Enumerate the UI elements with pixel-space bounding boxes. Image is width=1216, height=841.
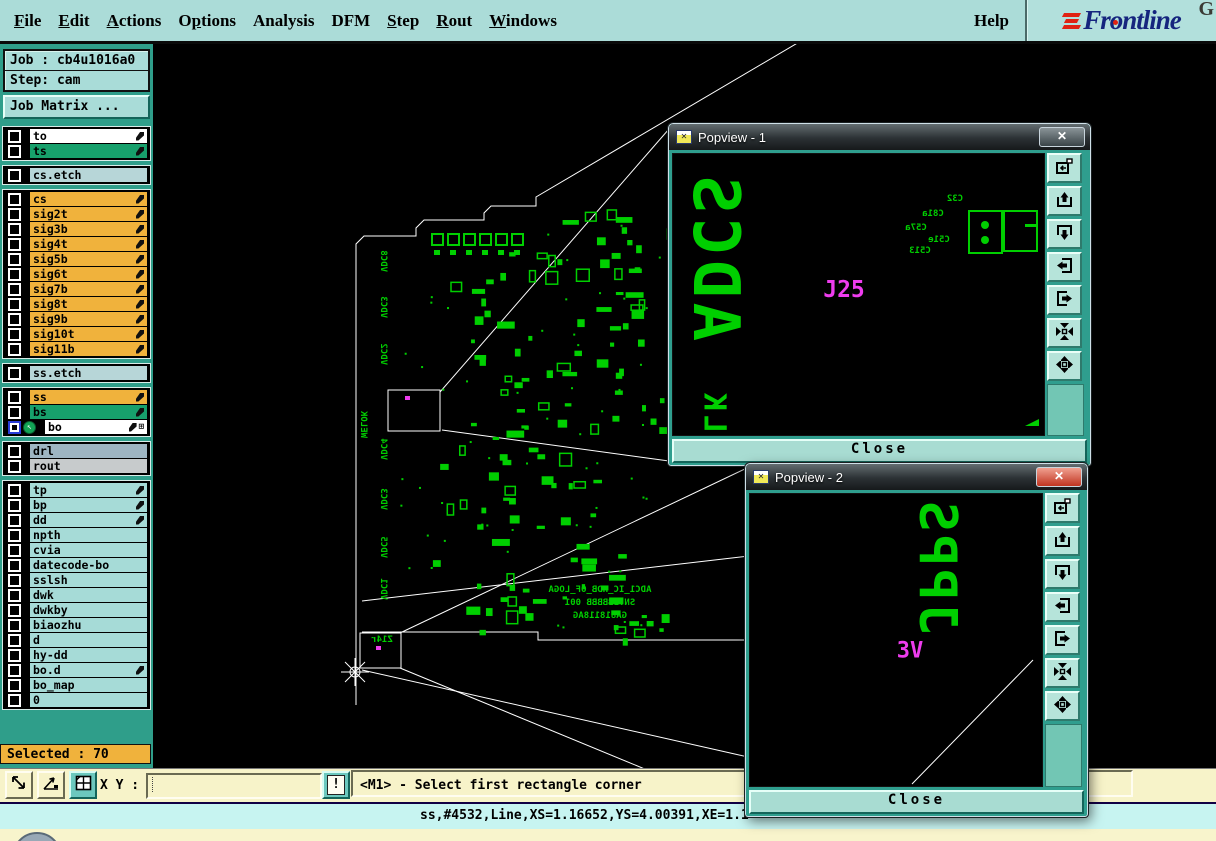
layer-visibility-checkbox[interactable] [8,484,21,497]
layer-visibility-checkbox[interactable] [8,499,21,512]
popview-1-drawing: ADCS J25 LK C32C81aC57aC51eC513 [673,154,1044,435]
pan-left-button[interactable] [1047,252,1082,282]
logo-speed-lines-icon [1063,13,1080,29]
layer-row-dwk[interactable]: dwk [5,588,148,602]
layer-label: tp [33,483,47,497]
layer-list: totscs.etchcssig2tsig3bsig4tsig5bsig6tsi… [2,126,151,710]
layer-chip[interactable]: sig4t [29,236,148,252]
popview-app-icon: ✕ [753,470,769,484]
component-ref-label: C513 [909,246,931,256]
layer-chip[interactable]: sig8t [29,296,148,312]
layer-label: ss [33,390,47,404]
pan-down-button[interactable] [1047,219,1082,249]
layer-row-ss.etch[interactable]: ss.etch [5,366,148,380]
zoom-out-icon [1053,662,1072,684]
layer-visibility-checkbox[interactable] [8,574,21,587]
layer-row-sig8t[interactable]: sig8t [5,297,148,311]
layer-label: cvia [33,543,61,557]
pan-left-button[interactable] [1045,592,1080,622]
layer-chip[interactable]: sig11b [29,341,148,357]
highlight-marker [376,646,381,650]
angle-snap-button[interactable] [37,771,65,799]
layer-row-cvia[interactable]: cvia [5,543,148,557]
layer-row-ss[interactable]: ss [5,390,148,404]
layer-row-biaozhu[interactable]: biaozhu [5,618,148,632]
feather-edit-icon[interactable] [136,225,144,234]
layer-visibility-checkbox[interactable] [8,193,21,206]
layer-label: bo.d [33,663,61,677]
highlight-marker [405,396,410,400]
layer-label: hy-dd [33,648,68,662]
layer-label: to [33,129,47,143]
menu-item-file[interactable]: File [14,11,41,31]
layer-group: drlrout [2,441,151,476]
layer-chip[interactable]: cs.etch [29,167,148,183]
layer-row-cs.etch[interactable]: cs.etch [5,168,148,182]
selected-count-badge: Selected : 70 [0,744,151,764]
feather-edit-icon[interactable] [136,516,144,525]
feather-edit-icon[interactable] [136,408,144,417]
layer-label: dd [33,513,47,527]
layer-label: sslsh [33,573,68,587]
component-ref-label: C32 [947,194,963,204]
xy-label: X Y : [100,769,139,802]
layer-chip[interactable]: dwk [29,587,148,603]
layer-chip[interactable]: sig5b [29,251,148,267]
layer-visibility-checkbox[interactable] [8,391,21,404]
feather-edit-icon[interactable] [136,666,144,675]
layer-chip[interactable]: ss.etch [29,365,148,381]
popview-1-title: Popview - 1 [698,130,1039,145]
layer-chip[interactable]: ts [29,143,148,159]
sidebar: Job : cb4u1016a0 Step: cam Job Matrix ..… [0,44,155,768]
taskbar-edge [0,829,1216,841]
zoom-leader-line [362,670,748,757]
pan-up-icon [1055,190,1074,212]
pan-right-icon [1055,289,1074,311]
board-title-text: ADC1_IC_HDB_OF_LOGA [548,585,652,595]
tile-grid-icon [74,774,93,796]
component-ref-label: C51e [928,235,950,245]
menu-item-actions[interactable]: Actions [107,11,162,31]
layer-visibility-checkbox[interactable] [8,367,21,380]
layer-label: dwkby [33,603,68,617]
layer-visibility-checkbox[interactable] [8,145,21,158]
layer-row-rout[interactable]: rout [5,459,148,473]
layer-visibility-checkbox[interactable] [8,406,21,419]
layer-row-datecode-bo[interactable]: datecode-bo [5,558,148,572]
logo-text: Frontline [1083,5,1181,36]
layer-row-dd[interactable]: dd [5,513,148,527]
layer-row-sig9b[interactable]: sig9b [5,312,148,326]
feather-edit-icon[interactable] [129,423,137,432]
menu-item-edit[interactable]: Edit [58,11,89,31]
layer-label: bo [48,420,62,434]
alert-button[interactable]: ! [322,771,350,799]
layer-visibility-checkbox[interactable] [8,238,21,251]
view-snapshot-button[interactable] [1047,153,1082,183]
layer-label: sig3b [33,222,68,236]
layer-row-ts[interactable]: ts [5,144,148,158]
zoom-leader-line [400,467,749,633]
pan-down-icon [1053,563,1072,585]
layer-chip[interactable]: sslsh [29,572,148,588]
layer-label: dwk [33,588,54,602]
start-orb-icon[interactable] [12,832,62,841]
layer-row-sslsh[interactable]: sslsh [5,573,148,587]
layer-visibility-checkbox[interactable] [8,298,21,311]
layer-chip[interactable]: datecode-bo [29,557,148,573]
angle-snap-icon [42,774,61,796]
feather-edit-icon[interactable] [136,147,144,156]
popview-2-title: Popview - 2 [775,470,1036,485]
step-name-label: Step: cam [5,71,148,90]
resize-diagonal-icon [10,774,29,796]
layer-row-0[interactable]: 0 [5,693,148,707]
layer-chip[interactable]: sig2t [29,206,148,222]
layer-row-bo_map[interactable]: bo_map [5,678,148,692]
layer-row-sig5b[interactable]: sig5b [5,252,148,266]
layer-label: 0 [33,693,40,707]
layer-label: datecode-bo [33,558,109,572]
layer-row-npth[interactable]: npth [5,528,148,542]
silkscreen-net-label: VDC1 [378,578,388,600]
brand-logo: Frontline G [1028,0,1216,41]
layer-chip[interactable]: to [29,128,148,144]
layer-visibility-checkbox[interactable] [8,283,21,296]
resize-diagonal-button[interactable] [5,771,33,799]
job-info-panel: Job : cb4u1016a0 Step: cam [3,49,150,92]
layer-group: tpbpddnpthcviadatecode-bosslshdwkdwkbybi… [2,480,151,710]
view-snapshot-icon [1053,497,1072,519]
layer-chip[interactable]: biaozhu [29,617,148,633]
layer-visibility-checkbox[interactable] [8,253,21,266]
zoom-out-button[interactable] [1047,318,1082,348]
feather-edit-icon[interactable] [136,300,144,309]
layer-visibility-checkbox[interactable] [8,664,21,677]
zoom-leader-line [442,430,669,461]
xy-coordinate-input[interactable] [146,773,322,799]
layer-row-bo.d[interactable]: bo.d [5,663,148,677]
layer-chip[interactable]: npth [29,527,148,543]
feather-edit-icon[interactable] [136,345,144,354]
silkscreen-text-vertical: ADCS [678,171,752,341]
pan-right-button[interactable] [1047,285,1082,315]
layer-row-to[interactable]: to [5,129,148,143]
layer-visibility-checkbox[interactable] [8,589,21,602]
feather-edit-icon[interactable] [136,501,144,510]
popview-2-titlebar[interactable]: ✕ Popview - 2 ✕ [746,464,1087,490]
layer-visibility-checkbox[interactable] [8,268,21,281]
board-title-text: SN:BBBBBB 001 [565,598,635,608]
layer-chip[interactable]: 0 [29,692,148,708]
layer-row-sig10t[interactable]: sig10t [5,327,148,341]
layer-row-drl[interactable]: drl [5,444,148,458]
menu-item-rout[interactable]: Rout [436,11,472,31]
layer-chip[interactable]: bo⊞ [44,419,148,435]
layer-label: sig5b [33,252,68,266]
layer-group: tots [2,126,151,161]
layer-row-sig2t[interactable]: sig2t [5,207,148,221]
layer-label: sig11b [33,342,75,356]
layer-chip[interactable]: bs [29,404,148,420]
pan-up-icon [1053,530,1072,552]
zoom-in-icon [1055,355,1074,377]
layer-row-hy-dd[interactable]: hy-dd [5,648,148,662]
layer-chip[interactable]: sig3b [29,221,148,237]
pan-down-button[interactable] [1045,559,1080,589]
job-name-label: Job : cb4u1016a0 [5,51,148,71]
layer-chip[interactable]: rout [29,458,148,474]
popview-2-window: ✕ Popview - 2 ✕ JPPS 3V Close [745,463,1088,817]
layer-chip[interactable]: cs [29,191,148,207]
feather-edit-icon[interactable] [136,240,144,249]
zoom-in-icon [1053,695,1072,717]
layer-row-sig7b[interactable]: sig7b [5,282,148,296]
layer-chip[interactable]: bo.d [29,662,148,678]
silkscreen-net-label: VDC3 [378,488,388,510]
silkscreen-text-vertical: JPPS [907,497,967,634]
zoom-in-button[interactable] [1047,351,1082,381]
board-outline-segment [912,660,1033,784]
pan-left-icon [1055,256,1074,278]
layer-chip[interactable]: bp [29,497,148,513]
layer-chip[interactable]: dd [29,512,148,528]
layer-visibility-checkbox[interactable] [8,514,21,527]
layer-label: npth [33,528,61,542]
layer-label: sig7b [33,282,68,296]
popview-2-drawing: JPPS 3V [750,494,1042,786]
layer-visibility-checkbox[interactable] [8,223,21,236]
component-ref-label: C57a [905,223,927,233]
popview-app-icon: ✕ [676,130,692,144]
layer-visibility-checkbox[interactable] [8,445,21,458]
tile-grid-button[interactable] [69,771,97,799]
zoom-out-button[interactable] [1045,658,1080,688]
grid-icon: ⊞ [139,423,144,432]
layer-visibility-checkbox[interactable] [8,544,21,557]
layer-visibility-checkbox[interactable] [8,604,21,617]
silkscreen-net-label: Z14r [371,635,393,645]
layer-label: sig10t [33,327,75,341]
popview-1-close-button[interactable]: Close [672,439,1087,463]
popview-1-tools [1047,153,1084,436]
layer-visibility-checkbox[interactable] [8,649,21,662]
silkscreen-net-label: VDC5 [378,536,388,558]
layer-visibility-checkbox[interactable] [8,343,21,356]
silkscreen-net-label: VDC2 [378,343,388,365]
layer-group: cssig2tsig3bsig4tsig5bsig6tsig7bsig8tsig… [2,189,151,359]
logo-corner-letter: G [1198,0,1214,21]
feather-edit-icon[interactable] [136,132,144,141]
layer-row-sig11b[interactable]: sig11b [5,342,148,356]
popview-2-canvas[interactable]: JPPS 3V [749,493,1043,787]
popview-2-tools [1045,493,1082,787]
corner-mark [1025,419,1039,426]
layer-row-tp[interactable]: tp [5,483,148,497]
zoom-source-rect-1 [388,390,440,431]
layer-visibility-checkbox[interactable] [8,559,21,572]
popview-1-close-x-button[interactable]: ✕ [1039,127,1085,147]
layer-row-cs[interactable]: cs [5,192,148,206]
silkscreen-text-corner: LK [697,389,732,433]
pan-right-icon [1053,629,1072,651]
layer-visibility-checkbox[interactable] [8,130,21,143]
layer-label: ts [33,144,47,158]
board-title-text: GA818118AG [573,611,627,621]
layer-chip[interactable]: hy-dd [29,647,148,663]
net-label-3v: 3V [897,639,924,664]
layer-visibility-checkbox[interactable] [8,169,21,182]
toolbar-filler [1047,384,1084,436]
feather-edit-icon[interactable] [136,270,144,279]
text-caret [152,777,154,792]
layer-chip[interactable]: cvia [29,542,148,558]
layer-chip[interactable]: sig7b [29,281,148,297]
layer-visibility-checkbox[interactable] [8,529,21,542]
layer-label: d [33,633,40,647]
pan-down-icon [1055,223,1074,245]
feather-edit-icon[interactable] [136,255,144,264]
popview-2-close-x-button[interactable]: ✕ [1036,467,1082,487]
layer-row-sig4t[interactable]: sig4t [5,237,148,251]
layer-row-bs[interactable]: bs [5,405,148,419]
silkscreen-net-label: WELOK [358,410,368,438]
layer-row-d[interactable]: d [5,633,148,647]
view-snapshot-icon [1055,157,1074,179]
layer-row-sig3b[interactable]: sig3b [5,222,148,236]
layer-chip[interactable]: sig6t [29,266,148,282]
layer-label: bp [33,498,47,512]
layer-visibility-checkbox[interactable] [8,679,21,692]
component-ref-j25: J25 [823,277,865,303]
feather-edit-icon[interactable] [136,393,144,402]
layer-visibility-checkbox[interactable] [8,208,21,221]
feather-edit-icon[interactable] [136,285,144,294]
layer-label: sig2t [33,207,68,221]
layer-chip[interactable]: dwkby [29,602,148,618]
pan-up-button[interactable] [1045,526,1080,556]
layer-label: sig9b [33,312,68,326]
layer-visibility-checkbox[interactable] [8,328,21,341]
work-layer-icon: ↖ [23,421,36,434]
layer-label: sig8t [33,297,68,311]
layer-row-sig6t[interactable]: sig6t [5,267,148,281]
layer-chip[interactable]: ss [29,389,148,405]
layer-row-bp[interactable]: bp [5,498,148,512]
menu-item-analysis[interactable]: Analysis [253,11,314,31]
feather-edit-icon[interactable] [136,330,144,339]
menu-item-help[interactable]: Help [974,11,1009,31]
pan-up-button[interactable] [1047,186,1082,216]
feather-edit-icon[interactable] [136,210,144,219]
view-snapshot-button[interactable] [1045,493,1080,523]
job-matrix-button[interactable]: Job Matrix ... [3,95,150,119]
menu-item-windows[interactable]: Windows [489,11,557,31]
layer-chip[interactable]: drl [29,443,148,459]
menu-item-step[interactable]: Step [387,11,419,31]
layer-label: biaozhu [33,618,81,632]
layer-visibility-checkbox[interactable] [8,694,21,707]
layer-label: sig4t [33,237,68,251]
layer-label: bs [33,405,47,419]
feather-edit-icon[interactable] [136,195,144,204]
pan-left-icon [1053,596,1072,618]
layer-chip[interactable]: sig10t [29,326,148,342]
status-coordinates-text: ss,#4532,Line,XS=1.16652,YS=4.00391,XE=1… [420,804,749,827]
exclamation-icon: ! [327,775,345,795]
popview-1-canvas[interactable]: ADCS J25 LK C32C81aC57aC51eC513 [672,153,1045,436]
popview-2-close-button[interactable]: Close [749,790,1084,814]
layer-row-dwkby[interactable]: dwkby [5,603,148,617]
layer-visibility-checkbox[interactable] [8,460,21,473]
silkscreen-net-label: VDC4 [378,438,388,460]
layer-chip[interactable]: d [29,632,148,648]
layer-group: cs.etch [2,165,151,185]
layer-group: ss.etch [2,363,151,383]
feather-edit-icon[interactable] [136,315,144,324]
pan-right-button[interactable] [1045,625,1080,655]
component-ref-label: C81a [922,209,944,219]
layer-group: ssbs↖bo⊞ [2,387,151,437]
menu-item-dfm[interactable]: DFM [331,11,370,31]
menu-item-options[interactable]: Options [178,11,236,31]
silkscreen-net-label: VDC3 [378,296,388,318]
layer-visibility-checkbox[interactable] [8,619,21,632]
layer-label: rout [33,459,61,473]
application-window: VDC8VDC3VDC2VDC4VDC3VDC5VDC1WELOKADC1_IC… [0,0,1216,841]
popview-1-window: ✕ Popview - 1 ✕ ADCS J25 LK [668,123,1091,466]
popview-1-titlebar[interactable]: ✕ Popview - 1 ✕ [669,124,1090,150]
layer-label: cs.etch [33,168,81,182]
zoom-in-button[interactable] [1045,691,1080,721]
zoom-out-icon [1055,322,1074,344]
layer-label: cs [33,192,47,206]
layer-chip[interactable]: bo_map [29,677,148,693]
layer-label: sig6t [33,267,68,281]
connector-footprint [969,211,1037,253]
menu-items: FileEditActionsOptionsAnalysisDFMStepRou… [0,11,574,31]
layer-visibility-checkbox[interactable] [8,634,21,647]
layer-label: ss.etch [33,366,81,380]
layer-visibility-checkbox[interactable] [8,421,21,434]
layer-visibility-checkbox[interactable] [8,313,21,326]
layer-chip[interactable]: sig9b [29,311,148,327]
layer-label: bo_map [33,678,75,692]
toolbar-filler [1045,724,1082,787]
layer-chip[interactable]: tp [29,482,148,498]
layer-row-bo[interactable]: ↖bo⊞ [5,420,148,434]
layer-label: drl [33,444,54,458]
silkscreen-net-label: VDC8 [378,250,388,272]
feather-edit-icon[interactable] [136,486,144,495]
menu-bar: FileEditActionsOptionsAnalysisDFMStepRou… [0,0,1216,44]
